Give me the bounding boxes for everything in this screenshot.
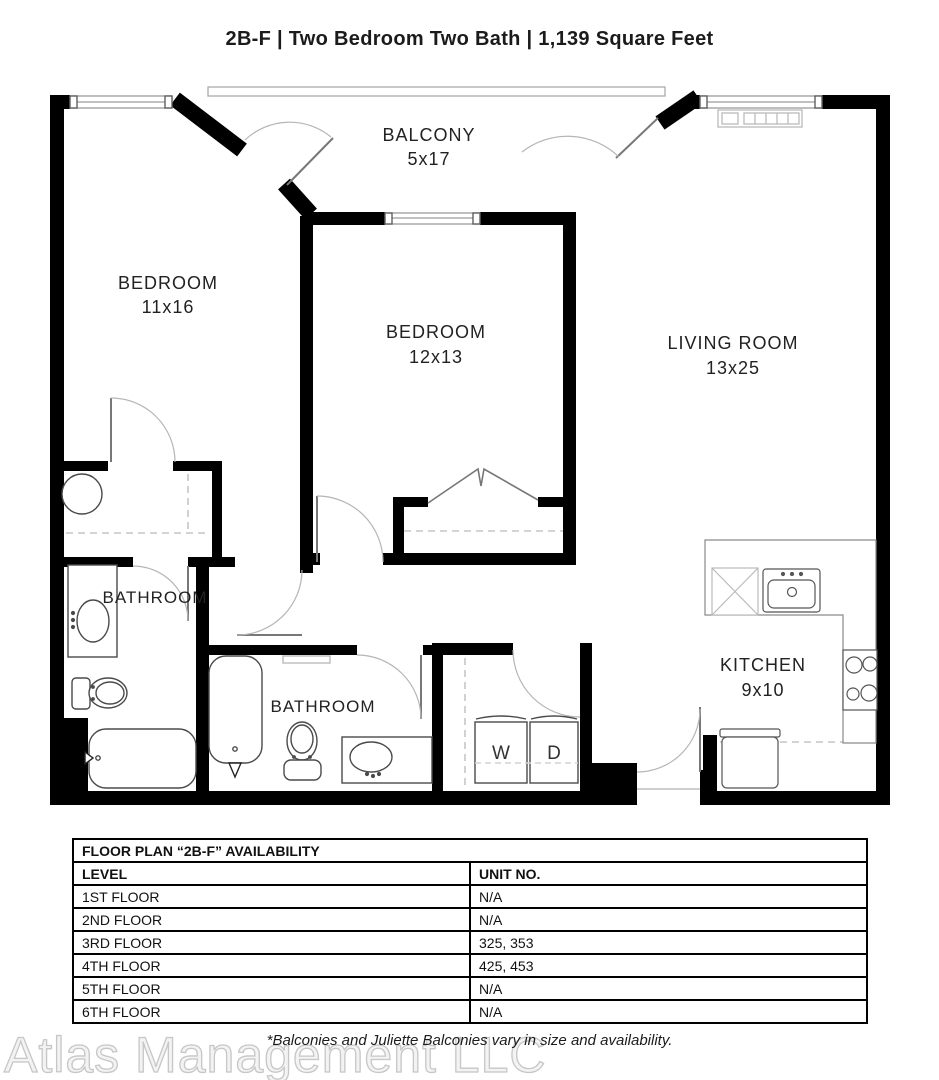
heater-unit <box>718 110 802 127</box>
bedroom1-window <box>70 96 172 108</box>
laundry-door <box>513 650 580 717</box>
living-room-label: LIVING ROOM <box>667 333 798 353</box>
bathroom2-bathtub <box>209 656 262 777</box>
living-room-dims: 13x25 <box>706 358 760 378</box>
floor-plan-page: 2B-F | Two Bedroom Two Bath | 1,139 Squa… <box>0 0 939 1080</box>
table-row: 5TH FLOOR N/A <box>73 977 867 1000</box>
level-cell: 5TH FLOOR <box>73 977 470 1000</box>
table-row: 2ND FLOOR N/A <box>73 908 867 931</box>
closet1-door <box>111 398 175 462</box>
unit-cell: N/A <box>470 908 867 931</box>
entry-door <box>637 707 700 789</box>
bathroom2-shelf <box>283 656 330 663</box>
bedroom2-closet-bifold-doors <box>428 469 538 503</box>
level-cell: 4TH FLOOR <box>73 954 470 977</box>
bathroom1-bathtub <box>85 729 196 788</box>
availability-table: FLOOR PLAN “2B-F” AVAILABILITY LEVEL UNI… <box>72 838 868 1024</box>
unit-cell: N/A <box>470 977 867 1000</box>
bedroom2-door <box>317 496 383 562</box>
refrigerator <box>720 729 780 788</box>
closet-stool <box>62 474 102 514</box>
bedroom2-dims: 12x13 <box>409 347 463 367</box>
bathroom2-label: BATHROOM <box>271 697 376 716</box>
level-cell: 2ND FLOOR <box>73 908 470 931</box>
unit-cell: 325, 353 <box>470 931 867 954</box>
table-row: 6TH FLOOR N/A <box>73 1000 867 1023</box>
balcony-door-bedroom1 <box>245 122 333 185</box>
living-room-window <box>700 96 822 108</box>
col-header-level: LEVEL <box>73 862 470 885</box>
unit-cell: N/A <box>470 885 867 908</box>
level-cell: 6TH FLOOR <box>73 1000 470 1023</box>
table-row: 3RD FLOOR 325, 353 <box>73 931 867 954</box>
kitchen-sink <box>763 569 820 612</box>
bathroom1-vanity <box>68 565 117 657</box>
balcony-label: BALCONY <box>382 125 475 145</box>
washer-label: W <box>492 743 510 764</box>
table-title-row: FLOOR PLAN “2B-F” AVAILABILITY <box>73 839 867 862</box>
unit-cell: 425, 453 <box>470 954 867 977</box>
bathroom1-label: BATHROOM <box>103 588 208 607</box>
kitchen-dims: 9x10 <box>741 680 784 700</box>
table-title: FLOOR PLAN “2B-F” AVAILABILITY <box>73 839 867 862</box>
dishwasher <box>712 568 758 615</box>
stove <box>843 650 877 710</box>
bathroom2-fixtures <box>209 656 432 783</box>
col-header-unit: UNIT NO. <box>470 862 867 885</box>
table-row: 4TH FLOOR 425, 453 <box>73 954 867 977</box>
balcony-dims: 5x17 <box>407 149 450 169</box>
bedroom1-label: BEDROOM <box>118 273 218 293</box>
table-row: 1ST FLOOR N/A <box>73 885 867 908</box>
kitchen-label: KITCHEN <box>720 655 806 675</box>
balcony-door-living <box>522 118 658 158</box>
balcony-railing <box>208 87 665 96</box>
bathroom1-toilet <box>72 678 127 709</box>
level-cell: 3RD FLOOR <box>73 931 470 954</box>
table-header-row: LEVEL UNIT NO. <box>73 862 867 885</box>
balcony-disclaimer-note: *Balconies and Juliette Balconies vary i… <box>267 1032 673 1049</box>
level-cell: 1ST FLOOR <box>73 885 470 908</box>
bedroom2-window <box>385 213 480 224</box>
bedroom2-label: BEDROOM <box>386 322 486 342</box>
dryer-label: D <box>547 743 561 764</box>
bathroom2-toilet <box>284 722 321 780</box>
hall-door <box>237 570 302 635</box>
bedroom1-dims: 11x16 <box>142 297 195 317</box>
laundry-appliances <box>475 716 578 783</box>
bathroom2-vanity <box>342 737 432 783</box>
unit-cell: N/A <box>470 1000 867 1023</box>
